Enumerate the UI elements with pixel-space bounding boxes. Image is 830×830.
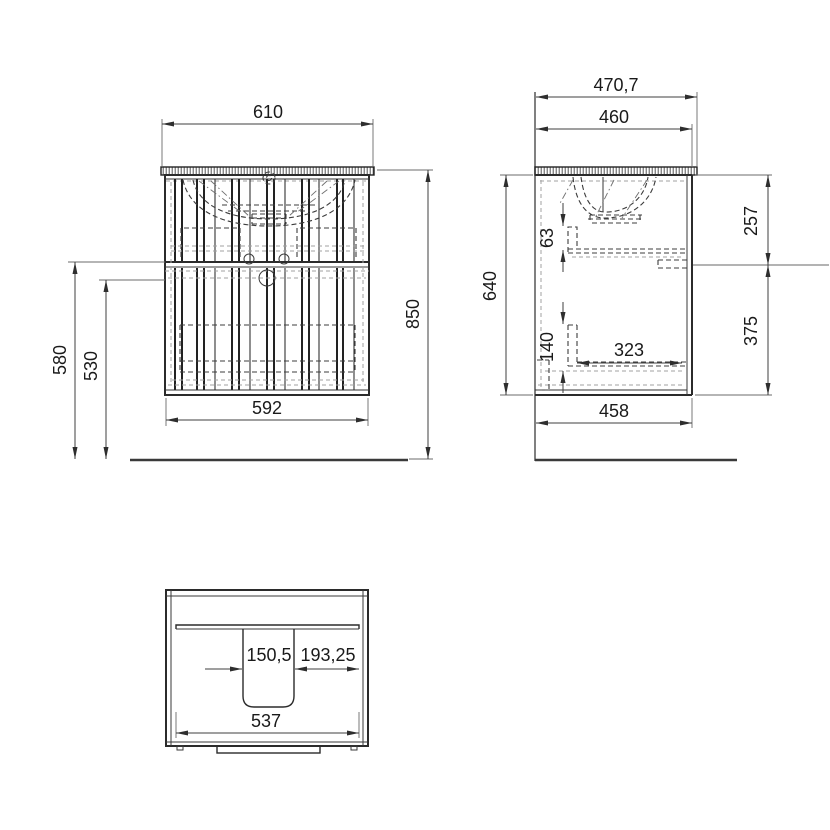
dim-label-front-floor-to-split: 580 [50,345,70,375]
dim-label-plan-inner-width: 537 [251,711,281,731]
dim-label-side-upper-section: 257 [741,206,761,236]
dim-label-side-upper-drawer-back: 63 [537,228,557,248]
dim-label-plan-cutout-width: 150,5 [246,645,291,665]
dim-label-side-depth-total: 470,7 [593,75,638,95]
dim-label-plan-cutout-to-side: 193,25 [300,645,355,665]
vanity-technical-drawing: 610 592 850 580 530 [0,0,830,830]
dim-label-side-body-height: 640 [480,271,500,301]
dim-label-side-lower-drawer-back: 140 [537,332,557,362]
dim-label-side-lower-section: 375 [741,316,761,346]
dim-label-front-width-body: 592 [252,398,282,418]
background [0,0,830,830]
dim-label-side-drawer-depth: 323 [614,340,644,360]
dim-label-front-height-total: 850 [403,299,423,329]
dim-label-side-depth-counter: 460 [599,107,629,127]
drawing-canvas: 610 592 850 580 530 [0,0,830,830]
dim-label-side-body-depth: 458 [599,401,629,421]
dim-label-front-floor-to-drawer: 530 [81,351,101,381]
dim-label-front-width-top: 610 [253,102,283,122]
